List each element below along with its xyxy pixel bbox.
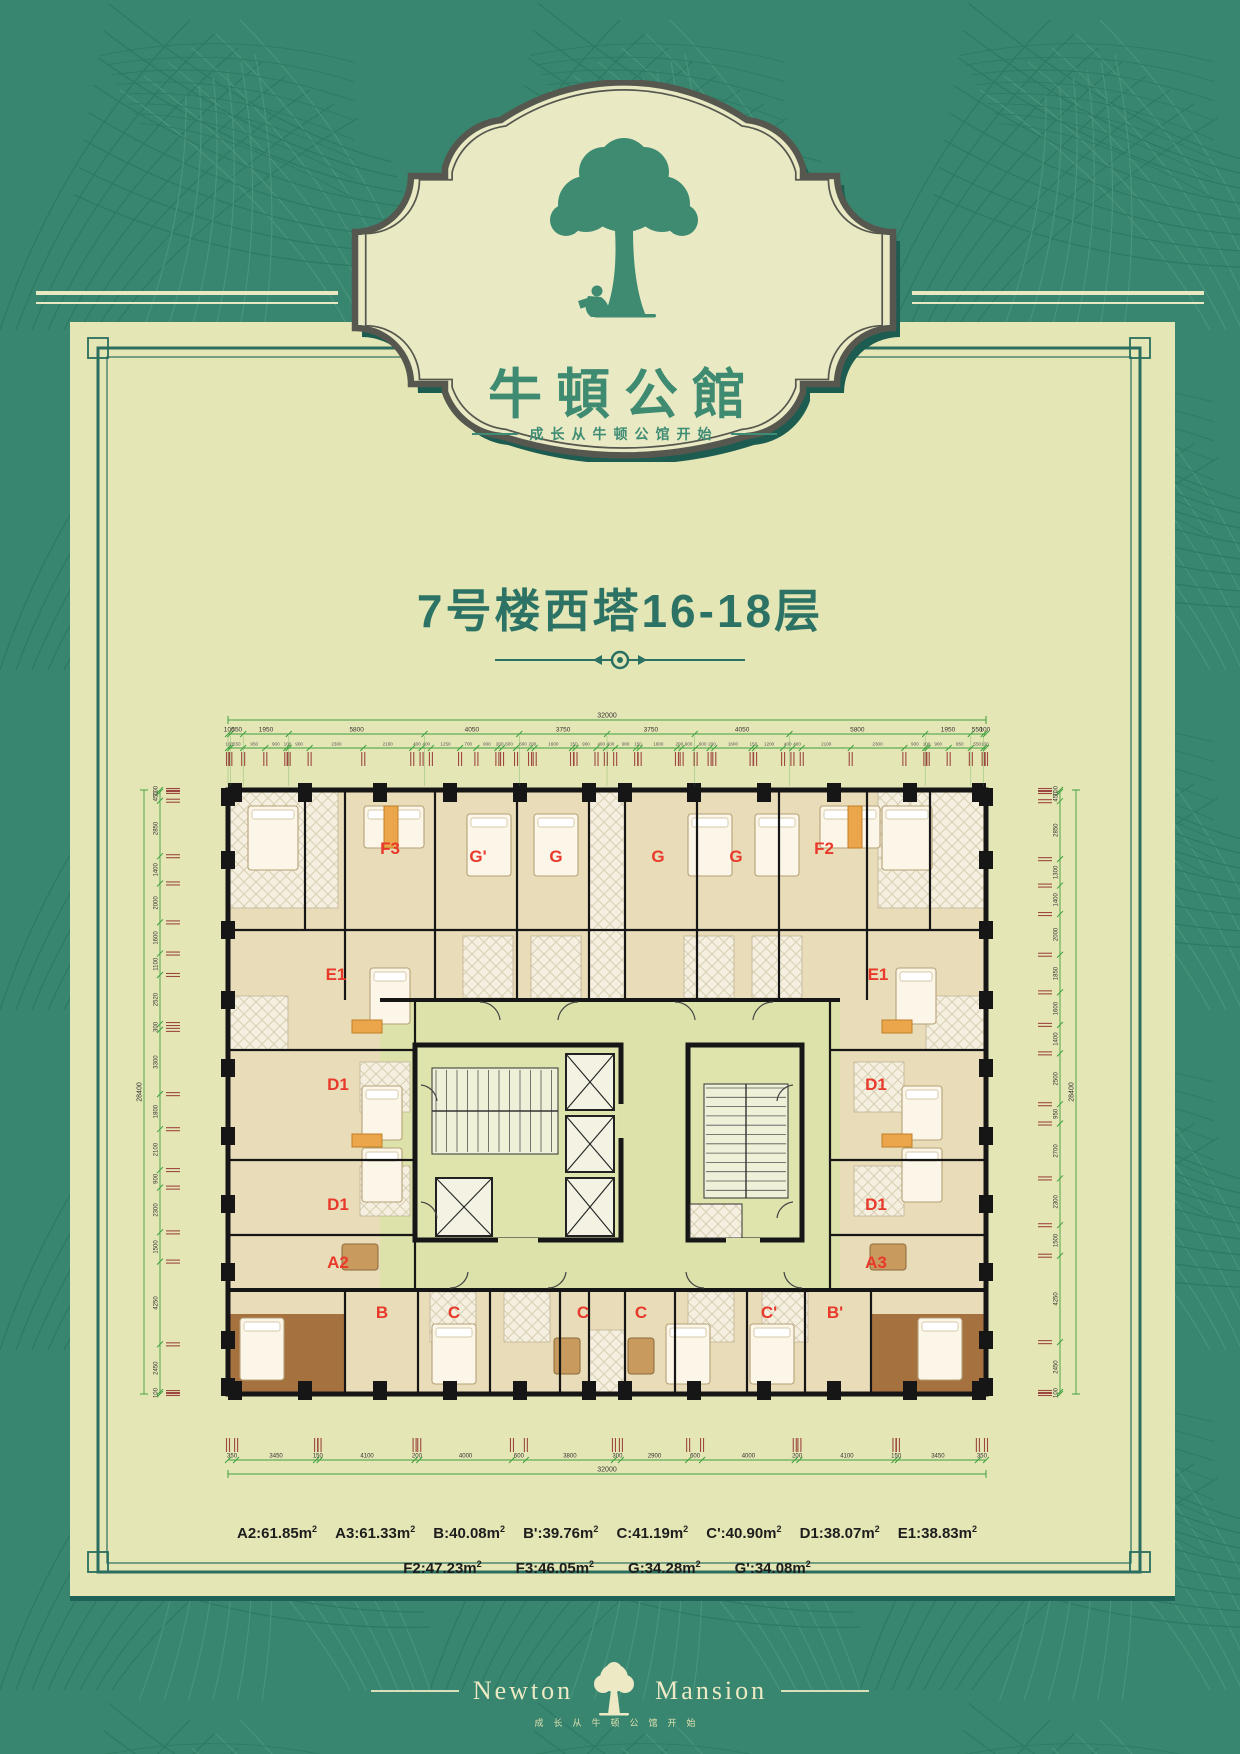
svg-text:3450: 3450 — [269, 1454, 283, 1460]
svg-text:5800: 5800 — [349, 727, 364, 734]
svg-text:3750: 3750 — [644, 727, 659, 734]
elevator-core-left — [415, 1045, 621, 1240]
footer-tagline: 成长从牛顿公馆开始 — [0, 1716, 1240, 1729]
svg-text:450: 450 — [1054, 791, 1060, 802]
legend-item: G':34.08m2 — [735, 1559, 811, 1577]
svg-text:28400: 28400 — [137, 1082, 144, 1102]
svg-text:1400: 1400 — [1054, 1032, 1060, 1046]
frame-line-right-thin — [912, 302, 1204, 304]
svg-text:2850: 2850 — [1054, 823, 1060, 837]
footer-logo: Newton Mansion — [0, 1660, 1240, 1722]
svg-text:1400: 1400 — [154, 863, 160, 877]
unit-label: B' — [827, 1303, 843, 1322]
legend-item: A3:61.33m2 — [335, 1524, 415, 1542]
svg-text:550: 550 — [231, 727, 242, 734]
svg-text:1300: 1300 — [1054, 865, 1060, 879]
unit-label: D1 — [327, 1195, 349, 1214]
svg-text:600: 600 — [519, 742, 527, 747]
unit-label: C — [635, 1303, 647, 1322]
svg-text:600: 600 — [699, 742, 707, 747]
svg-text:2000: 2000 — [1054, 927, 1060, 941]
svg-text:2450: 2450 — [154, 1361, 160, 1375]
svg-text:150: 150 — [634, 742, 642, 747]
tagline-dash-right — [731, 433, 777, 435]
unit-label: B — [376, 1303, 388, 1322]
svg-text:300: 300 — [612, 1454, 623, 1460]
svg-text:2520: 2520 — [154, 992, 160, 1006]
legend-row: A2:61.85m2A3:61.33m2B:40.08m2B':39.76m2C… — [237, 1524, 977, 1542]
svg-text:100: 100 — [1054, 1387, 1060, 1398]
tagline-dash-left — [472, 433, 518, 435]
svg-text:350: 350 — [977, 1454, 988, 1460]
svg-text:2300: 2300 — [872, 742, 883, 747]
title-divider — [495, 648, 745, 672]
svg-text:2850: 2850 — [154, 821, 160, 835]
footer-brand-right: Mansion — [655, 1676, 767, 1706]
panel-bottom-rule — [70, 1596, 1175, 1601]
svg-text:1250: 1250 — [440, 742, 451, 747]
svg-text:2100: 2100 — [383, 742, 394, 747]
svg-text:450: 450 — [154, 791, 160, 802]
svg-text:4100: 4100 — [840, 1454, 854, 1460]
svg-text:950: 950 — [956, 742, 964, 747]
svg-text:4000: 4000 — [459, 1454, 473, 1460]
svg-text:900: 900 — [622, 742, 630, 747]
svg-text:3450: 3450 — [931, 1454, 945, 1460]
brand-wordmark: 牛頓公館 — [333, 350, 915, 429]
svg-text:150: 150 — [891, 1454, 902, 1460]
brand-tagline: 成长从牛顿公馆开始 — [333, 424, 915, 444]
frame-line-right-thick — [912, 291, 1204, 295]
legend-item: A2:61.85m2 — [237, 1524, 317, 1542]
unit-label: C — [577, 1303, 589, 1322]
svg-text:400: 400 — [422, 742, 430, 747]
footer-line-left — [371, 1690, 459, 1692]
floor-plan: F3G'GGGF2E1E1D1D1D1D1A2A3BCCCC'B' 320001… — [130, 690, 1140, 1505]
svg-text:900: 900 — [582, 742, 590, 747]
unit-label: E1 — [326, 965, 347, 984]
svg-text:600: 600 — [690, 1454, 701, 1460]
stair-core-right — [688, 1045, 802, 1240]
svg-text:900: 900 — [272, 742, 280, 747]
svg-text:2100: 2100 — [821, 742, 832, 747]
svg-text:4050: 4050 — [735, 727, 750, 734]
svg-text:400: 400 — [784, 742, 792, 747]
unit-label: G — [651, 847, 664, 866]
svg-text:950: 950 — [250, 742, 258, 747]
legend-item: F3:46.05m2 — [516, 1559, 594, 1577]
svg-text:3300: 3300 — [154, 1055, 160, 1069]
svg-text:1800: 1800 — [154, 1104, 160, 1118]
floor-title: 7号楼西塔16-18层 — [0, 575, 1240, 641]
legend-item: F2:47.23m2 — [403, 1559, 481, 1577]
svg-text:1600: 1600 — [548, 742, 559, 747]
svg-text:1950: 1950 — [259, 727, 274, 734]
svg-text:600: 600 — [685, 742, 693, 747]
svg-text:2300: 2300 — [1054, 1194, 1060, 1208]
svg-text:28400: 28400 — [1069, 1082, 1076, 1102]
divider-diamond-icon — [638, 655, 647, 665]
svg-text:600: 600 — [514, 1454, 525, 1460]
svg-text:950: 950 — [1054, 1108, 1060, 1119]
unit-label: G — [729, 847, 742, 866]
legend-item: C':40.90m2 — [706, 1524, 781, 1542]
legend-item: B':39.76m2 — [523, 1524, 598, 1542]
area-legend: A2:61.85m2A3:61.33m2B:40.08m2B':39.76m2C… — [237, 1524, 977, 1577]
svg-text:4000: 4000 — [742, 1454, 756, 1460]
svg-text:400: 400 — [793, 742, 801, 747]
svg-text:2500: 2500 — [1054, 1071, 1060, 1085]
svg-text:200: 200 — [675, 742, 683, 747]
frame-line-left-thin — [36, 302, 338, 304]
svg-text:600: 600 — [505, 742, 513, 747]
unit-label: G' — [469, 847, 486, 866]
svg-text:2450: 2450 — [1054, 1360, 1060, 1374]
svg-text:1600: 1600 — [728, 742, 739, 747]
unit-label: D1 — [865, 1075, 887, 1094]
unit-label: F2 — [814, 839, 834, 858]
svg-text:400: 400 — [607, 742, 615, 747]
svg-text:1850: 1850 — [1054, 966, 1060, 980]
svg-text:32000: 32000 — [597, 713, 617, 720]
svg-text:2000: 2000 — [154, 896, 160, 910]
footer-tree-icon — [587, 1660, 641, 1722]
unit-label: F3 — [380, 839, 400, 858]
svg-text:200: 200 — [529, 742, 537, 747]
legend-item: B:40.08m2 — [433, 1524, 505, 1542]
svg-text:2700: 2700 — [1054, 1144, 1060, 1158]
footer-brand-left: Newton — [473, 1676, 573, 1706]
legend-item: C:41.19m2 — [616, 1524, 688, 1542]
unit-label: D1 — [865, 1195, 887, 1214]
svg-text:5800: 5800 — [850, 727, 865, 734]
unit-label: C' — [761, 1303, 777, 1322]
legend-item: E1:38.83m2 — [898, 1524, 977, 1542]
svg-text:200: 200 — [496, 742, 504, 747]
svg-text:150: 150 — [313, 1454, 324, 1460]
legend-item: D1:38.07m2 — [800, 1524, 880, 1542]
unit-label: A2 — [327, 1253, 349, 1272]
svg-text:1500: 1500 — [1054, 1233, 1060, 1247]
svg-text:300: 300 — [154, 1021, 160, 1032]
unit-label: C — [448, 1303, 460, 1322]
svg-text:1500: 1500 — [154, 1240, 160, 1254]
svg-text:4250: 4250 — [154, 1296, 160, 1310]
svg-text:150: 150 — [750, 742, 758, 747]
svg-text:32000: 32000 — [597, 1467, 617, 1474]
svg-text:2300: 2300 — [331, 742, 342, 747]
poster-page: 牛頓公館 成长从牛顿公馆开始 7号楼西塔16-18层 F3G'GGGF2E1E1… — [0, 0, 1240, 1754]
divider-diamond-icon — [593, 655, 602, 665]
svg-text:1200: 1200 — [764, 742, 775, 747]
svg-text:2300: 2300 — [154, 1203, 160, 1217]
svg-text:3800: 3800 — [563, 1454, 577, 1460]
svg-text:700: 700 — [464, 742, 472, 747]
footer-line-right — [781, 1690, 869, 1692]
svg-text:200: 200 — [708, 742, 716, 747]
svg-text:1600: 1600 — [154, 931, 160, 945]
svg-text:900: 900 — [483, 742, 491, 747]
unit-label: A3 — [865, 1253, 887, 1272]
svg-text:350: 350 — [227, 1454, 238, 1460]
svg-text:150: 150 — [570, 742, 578, 747]
svg-text:900: 900 — [154, 1173, 160, 1184]
svg-text:550: 550 — [233, 742, 241, 747]
svg-text:900: 900 — [934, 742, 942, 747]
svg-text:3750: 3750 — [556, 727, 571, 734]
svg-text:400: 400 — [413, 742, 421, 747]
legend-item: G:34.28m2 — [628, 1559, 701, 1577]
svg-text:4050: 4050 — [465, 727, 480, 734]
frame-line-left-thick — [36, 291, 338, 295]
svg-text:2100: 2100 — [154, 1142, 160, 1156]
unit-label: G — [549, 847, 562, 866]
svg-text:2900: 2900 — [648, 1454, 662, 1460]
svg-text:400: 400 — [597, 742, 605, 747]
legend-row: F2:47.23m2F3:46.05m2G:34.28m2G':34.08m2 — [237, 1559, 977, 1577]
svg-text:1100: 1100 — [154, 957, 160, 971]
svg-text:1950: 1950 — [941, 727, 956, 734]
svg-text:1400: 1400 — [1054, 892, 1060, 906]
svg-text:900: 900 — [911, 742, 919, 747]
svg-text:4250: 4250 — [1054, 1292, 1060, 1306]
svg-text:4100: 4100 — [360, 1454, 374, 1460]
svg-text:100: 100 — [979, 727, 990, 734]
svg-text:1600: 1600 — [653, 742, 664, 747]
unit-label: D1 — [327, 1075, 349, 1094]
svg-text:900: 900 — [295, 742, 303, 747]
svg-text:1600: 1600 — [1054, 1001, 1060, 1015]
svg-text:100: 100 — [154, 1387, 160, 1398]
unit-label: E1 — [868, 965, 889, 984]
